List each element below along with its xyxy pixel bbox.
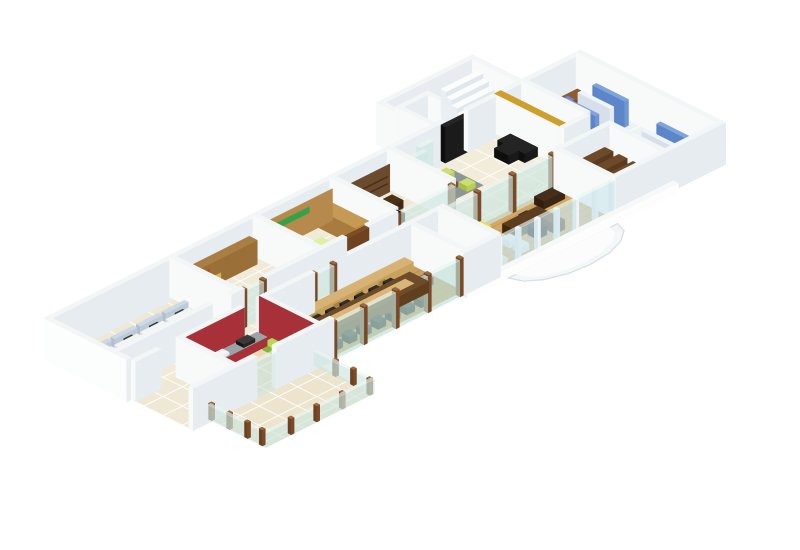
terrace-rail-south-post-3: [314, 403, 320, 422]
terrace-rail-south-post-4: [288, 416, 294, 435]
floor-plan-render: [0, 0, 800, 550]
terrace-rail-west-post-4: [259, 427, 265, 446]
terrace-rail-west-post-3: [245, 420, 251, 439]
terrace-rail-east-post-3: [350, 367, 356, 386]
floor-plan-canvas: [0, 0, 800, 550]
